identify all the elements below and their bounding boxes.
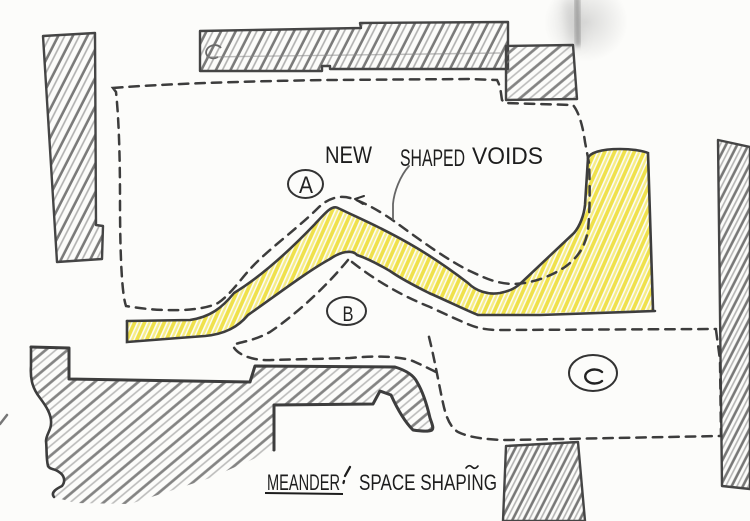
svg-text:A: A — [299, 172, 313, 199]
svg-text:SHAPED: SHAPED — [400, 145, 465, 172]
svg-text:NEW: NEW — [325, 142, 372, 169]
svg-text:VOIDS: VOIDS — [472, 143, 543, 170]
svg-text:B: B — [343, 303, 354, 326]
svg-text:SPACE SHAPING: SPACE SHAPING — [359, 470, 497, 495]
svg-text:MEANDER: MEANDER — [267, 470, 340, 495]
